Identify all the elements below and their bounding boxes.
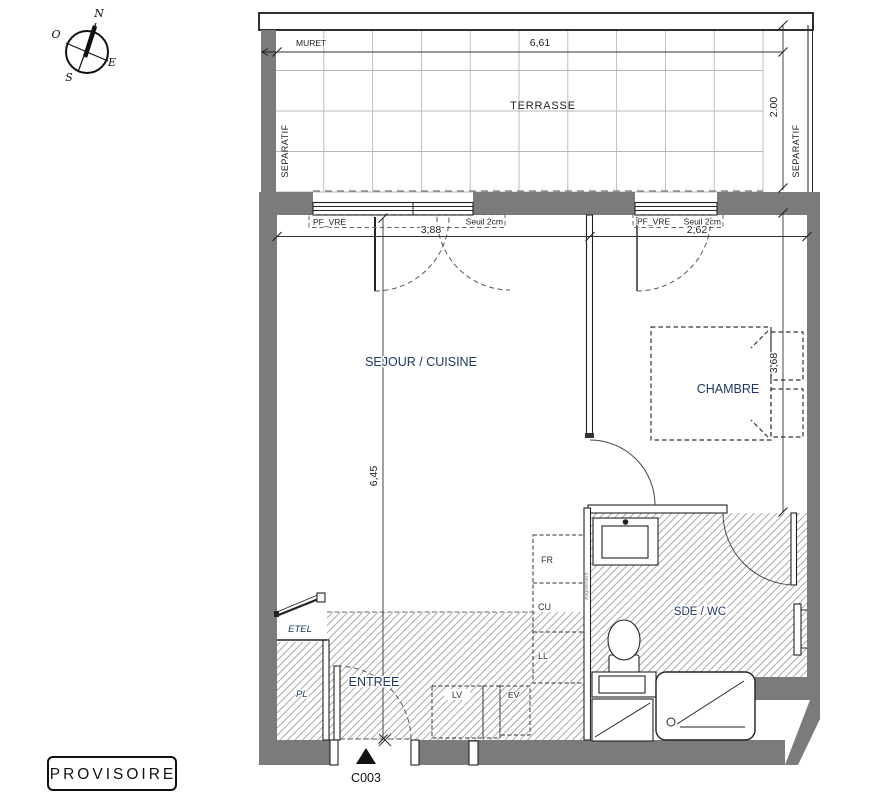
wall-corner-wedge (785, 700, 820, 765)
window-bedroom (635, 203, 717, 216)
wall-closet-partition (323, 640, 329, 740)
entry-door-jamb-left (330, 740, 338, 765)
floor-plan-drawing: MURET TERRASSE SEPARATIF SEPARATIF (0, 0, 885, 800)
etel-flap (276, 598, 321, 616)
dim-terrace-width: 6,61 (530, 37, 551, 49)
entry-label: ENTREE (349, 675, 400, 689)
compass-east: E (107, 56, 116, 69)
bathroom-cabinet-inner (599, 676, 645, 693)
muret-low-wall (259, 13, 813, 30)
bedroom-door-swing (590, 440, 655, 505)
wall-top-left-stub (277, 192, 313, 215)
entry-door-jamb-right (411, 740, 419, 765)
wall-top-middle (473, 192, 635, 215)
floor-plan-page: MURET TERRASSE SEPARATIF SEPARATIF (0, 0, 885, 800)
etel-flap-inner (277, 594, 320, 612)
entry-door-leaf (334, 666, 340, 740)
dim-terrace-depth: 2.00 (768, 97, 780, 118)
washer-label: LL (538, 651, 548, 661)
separatif-left-label: SEPARATIF (280, 124, 290, 177)
window-bedroom-sill: Seuil 2cm (684, 217, 721, 227)
separatif-fence-right (808, 25, 813, 192)
window-living-label: PF_VRE (313, 217, 346, 227)
door-code-label: C003 (351, 771, 381, 785)
sink-unit-label: EV (508, 690, 520, 700)
toilet-bowl (608, 620, 640, 660)
wall-right (807, 215, 820, 700)
wall-terrace-left (261, 30, 276, 192)
wall-joint-mark (469, 741, 478, 765)
etel-latch (317, 593, 325, 602)
living-label: SEJOUR / CUISINE (365, 355, 477, 369)
nightstand-bottom (771, 389, 803, 437)
washbasin-bowl (602, 526, 648, 558)
radiator (794, 604, 801, 655)
dim-bedroom-depth: 3,68 (768, 353, 780, 374)
wall-top-right (717, 192, 820, 215)
compass-west: O (51, 28, 60, 41)
muret-label: MURET (296, 38, 326, 48)
bathroom-door-leaf (791, 513, 797, 585)
wall-bottom-main (411, 740, 785, 765)
bedroom-label: CHAMBRE (697, 382, 760, 396)
wall-cap (585, 433, 594, 438)
compass-south: S (65, 71, 73, 84)
dim-living-depth: 6,45 (368, 466, 380, 487)
terrace-label: TERRASSE (510, 100, 576, 112)
alignment-note: Alignement (584, 572, 590, 600)
cooktop-label: CU (538, 602, 551, 612)
window-living (313, 203, 473, 216)
wall-bathroom-top (588, 505, 727, 513)
separatif-right-label: SEPARATIF (791, 124, 801, 177)
closet-label: PL (296, 689, 308, 700)
dishwasher-label: LV (452, 690, 462, 700)
compass-north: N (93, 7, 104, 20)
elec-box-label: ETEL (288, 624, 312, 635)
wall-bottom-left (259, 740, 338, 765)
window-living-sill: Seuil 2cm (466, 217, 503, 227)
bathroom-label: SDE / WC (674, 606, 726, 618)
dim-living-width: 3,88 (421, 224, 442, 236)
wall-left (259, 192, 277, 765)
window-bedroom-label: PF_VRE (637, 217, 670, 227)
entry-marker-triangle (356, 748, 376, 764)
wall-bathroom-bottom (748, 677, 820, 700)
etel-hinge (274, 611, 279, 617)
wall-bathroom-left (584, 508, 591, 740)
fridge-label: FR (541, 555, 553, 565)
compass-rose: N O E S (51, 7, 116, 84)
wall-living-bedroom (587, 215, 593, 436)
provisoire-stamp: PROVISOIRE (50, 766, 176, 783)
washbasin-faucet (623, 519, 629, 525)
